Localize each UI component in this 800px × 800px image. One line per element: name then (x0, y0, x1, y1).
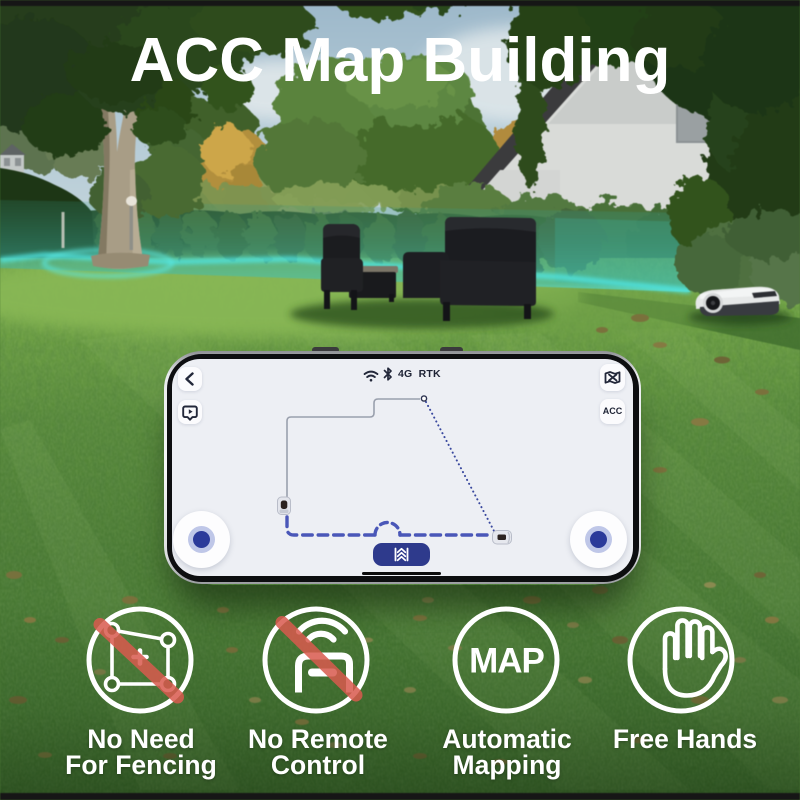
svg-text:MAP: MAP (469, 642, 544, 681)
